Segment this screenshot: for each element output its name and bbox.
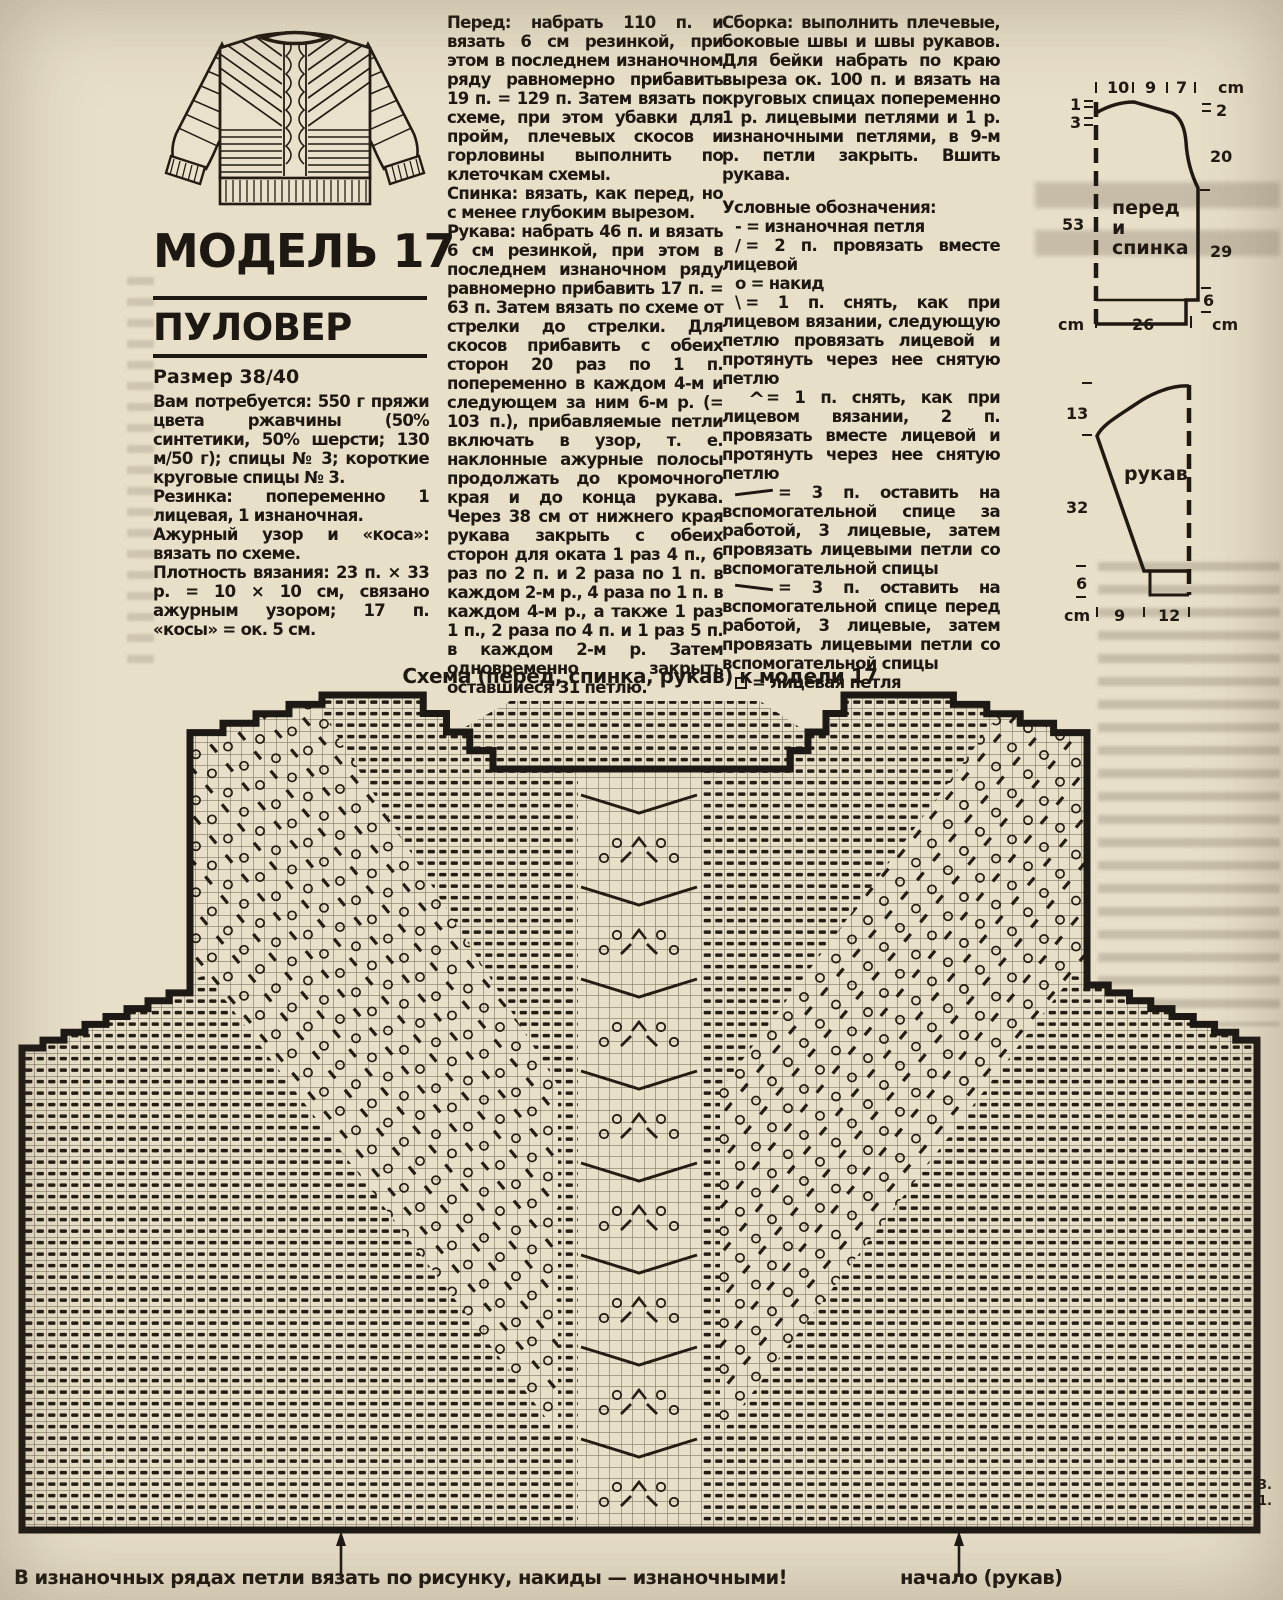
back-instructions: Спинка: вязать, как перед, но с менее гл… [447,184,723,222]
magazine-page: МОДЕЛЬ 17 ПУЛОВЕР Размер 38/40 Вам потре… [0,0,1283,1600]
measure-left-3: 3 [1070,113,1081,132]
purl-dash-icon: - [735,217,741,236]
legend-item: о= накид [722,274,1000,293]
legend-item: = 3 п. оставить на вспомогательной спице… [722,578,1000,673]
legend-text: = 1 п. снять, как при лицевом вязании, с… [722,293,1000,388]
schematic-label: рукав [1124,463,1188,485]
legend-text: = 2 п. провязать вместе лицевой [722,236,1000,274]
measure-top-10: 10 [1107,78,1129,97]
measure-left-13: 13 [1066,404,1088,423]
sleeve-start-label: начало (рукав) [900,1566,1062,1589]
measure-left-6: 6 [1076,574,1087,593]
measure-bottom-12: 12 [1158,606,1180,625]
yarn-over-icon: о [735,274,746,293]
assembly-column: Сборка: выполнить плечевые, боковые швы … [722,13,1000,692]
legend-item: \= 1 п. снять, как при лицевом вязании, … [722,293,1000,388]
unit-cm: cm [1064,606,1090,625]
legend-item: ^= 1 п. снять, как при лицевом вязании, … [722,388,1000,483]
chart-row-number: 1. [1258,1494,1272,1509]
schematic-sleeve: 13 32 6 cm 9 12 рукав [1012,365,1280,637]
measure-left-53: 53 [1062,215,1084,234]
measure-right-20: 20 [1210,147,1232,166]
chart-row-number: 3. [1258,1478,1272,1493]
legend-item: ∕= 2 п. провязать вместе лицевой [722,236,1000,274]
gauge-paragraph: Плотность вязания: 23 п. × 33 р. = 10 × … [153,563,429,639]
cable-back-icon [735,483,773,502]
instructions-column: Перед: набрать 110 п. и вязать 6 см рези… [447,13,723,697]
chart-footnote: В изнаночных рядах петли вязать по рисун… [14,1566,787,1589]
sweater-illustration [158,6,432,226]
cable-front-icon [735,578,773,597]
schematic-front-back: 10 9 7 cm 1 3 53 cm 2 20 29 6 cm 26 пере… [1012,62,1280,354]
materials-column: Вам потребуется: 550 г пряжи цвета ржавч… [153,392,429,639]
legend-text: = накид [751,274,824,293]
measure-right-2: 2 [1216,101,1227,120]
measure-top-9: 9 [1145,78,1156,97]
legend-text: = изнаночная петля [746,217,924,236]
schematic-label: спинка [1112,237,1189,259]
measure-top-7: 7 [1176,78,1187,97]
page-bleed-through [127,272,154,667]
page-title: МОДЕЛЬ 17 [153,224,455,278]
materials-paragraph: Вам потребуется: 550 г пряжи цвета ржавч… [153,392,429,487]
k2tog-slash-icon: ∕ [735,236,740,255]
legend-title: Условные обозначения: [722,198,1000,217]
subtitle-rule [153,354,427,358]
size-label: Размер 38/40 [153,366,299,388]
measure-right-6: 6 [1203,291,1214,310]
symbol-legend: -= изнаночная петля ∕= 2 п. провязать вм… [722,217,1000,692]
sleeve-instructions: Рукава: набрать 46 п. и вязать 6 см рези… [447,222,723,697]
measure-bottom-9: 9 [1114,606,1125,625]
unit-cm: cm [1212,315,1238,334]
rib-paragraph: Резинка: попеременно 1 лицевая, 1 изнано… [153,487,429,525]
pattern-paragraph: Ажурный узор и «коса»: вязать по схеме. [153,525,429,563]
legend-item: = 3 п. оставить на вспомогательной спице… [722,483,1000,578]
measure-left-1: 1 [1070,95,1081,114]
unit-cm: cm [1218,78,1244,97]
front-instructions: Перед: набрать 110 п. и вязать 6 см рези… [447,13,723,184]
title-rule [153,296,427,300]
assembly-instructions: Сборка: выполнить плечевые, боковые швы … [722,13,1000,184]
legend-item: -= изнаночная петля [722,217,1000,236]
measure-bottom-26: 26 [1132,315,1154,334]
garment-type-title: ПУЛОВЕР [153,306,352,349]
slip-decrease-icon: \ [735,293,740,312]
schematic-label: и [1112,217,1125,239]
knitting-chart [0,685,1283,1600]
measure-left-32: 32 [1066,498,1088,517]
schematic-label: перед [1112,197,1180,219]
double-decrease-icon: ^ [732,388,765,412]
measure-right-29: 29 [1210,242,1232,261]
unit-cm: cm [1058,315,1084,334]
